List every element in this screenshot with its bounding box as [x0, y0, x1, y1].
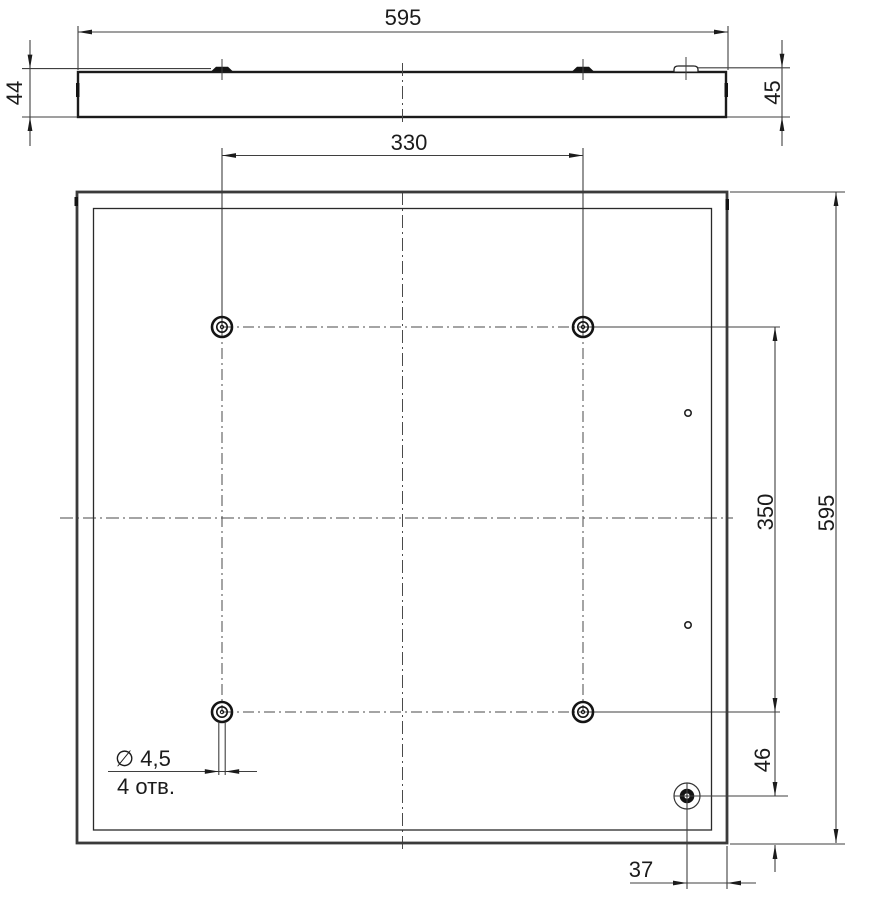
- dim-label-corner-hole-right: 37: [629, 857, 653, 882]
- edge-notch-left: [76, 83, 80, 97]
- dim-label-hole-pitch-x: 330: [391, 130, 428, 155]
- panel-rear-view: [60, 148, 780, 850]
- small-hole-upper: [685, 410, 691, 416]
- dim-label-right-height: 45: [760, 80, 785, 104]
- arrowhead: [28, 117, 33, 131]
- arrowhead: [780, 117, 785, 131]
- frame-tick-top-right: [726, 199, 730, 210]
- arrowhead: [727, 881, 741, 886]
- edge-notch-right: [725, 83, 729, 97]
- dim-top-width: 595: [78, 5, 728, 70]
- arrowhead: [205, 769, 219, 774]
- dim-label-panel-height: 595: [814, 495, 839, 532]
- callout-diameter-label: ∅ 4,5: [115, 746, 171, 771]
- arrowhead: [78, 30, 92, 35]
- callout-count-label: 4 отв.: [117, 774, 175, 799]
- arrowhead: [673, 881, 687, 886]
- technical-drawing-canvas: 595 44 45: [0, 0, 873, 906]
- arrowhead: [714, 30, 728, 35]
- arrowhead: [773, 782, 778, 796]
- arrowhead: [834, 192, 839, 206]
- dim-hole-pitch-x: 330: [222, 130, 583, 158]
- dim-hole-pitch-y: 350: [753, 327, 778, 712]
- dim-panel-height: 595: [730, 192, 845, 844]
- arrowhead: [225, 769, 239, 774]
- arrowhead: [773, 845, 778, 859]
- hole-extension-lines: [222, 148, 780, 712]
- arrowhead: [780, 54, 785, 68]
- frame-tick-top-left: [75, 197, 79, 206]
- arrowhead: [773, 327, 778, 341]
- dim-label-hole-pitch-y: 350: [753, 494, 778, 531]
- arrowhead: [834, 829, 839, 843]
- dim-label-corner-hole-bottom: 46: [750, 748, 775, 772]
- dim-label-left-height: 44: [2, 81, 27, 105]
- drawing-sheet: 595 44 45: [0, 0, 873, 906]
- arrowhead: [222, 153, 236, 158]
- arrowhead: [569, 153, 583, 158]
- side-view: [76, 57, 728, 125]
- arrowhead: [773, 698, 778, 712]
- arrowhead: [28, 55, 33, 69]
- small-hole-lower: [685, 622, 691, 628]
- small-holes: [685, 410, 691, 628]
- hole-diameter-callout: ∅ 4,5 4 отв.: [108, 722, 257, 799]
- dim-label-top-width: 595: [385, 5, 422, 30]
